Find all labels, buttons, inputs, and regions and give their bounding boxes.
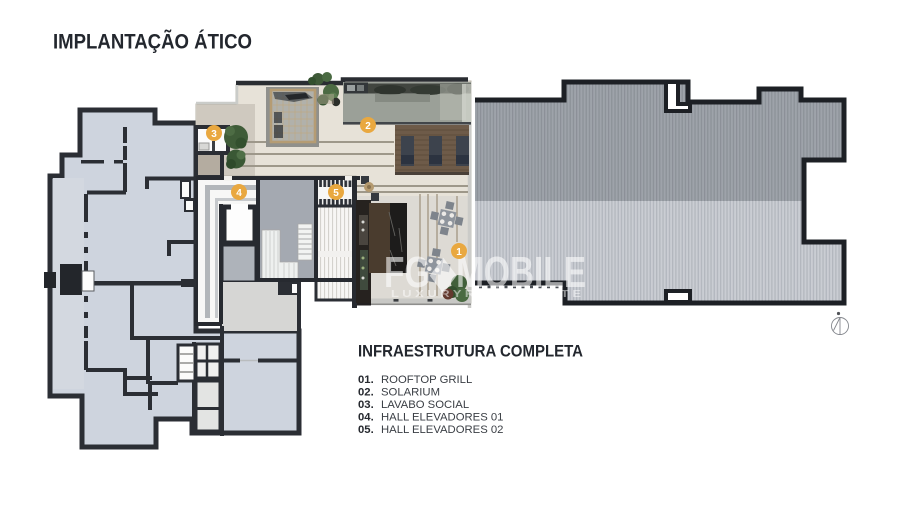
svg-text:L U X U R Y R E A L E S T: L U X U R Y R E A L E S T A T E	[391, 289, 581, 300]
svg-text:3: 3	[211, 129, 217, 140]
svg-text:2: 2	[365, 121, 371, 132]
svg-text:4: 4	[236, 188, 242, 199]
svg-text:5: 5	[333, 188, 339, 199]
svg-text:INFRAESTRUTURA COMPLETA: INFRAESTRUTURA COMPLETA	[358, 342, 583, 361]
svg-text:02.SOLARIUM: 02.SOLARIUM	[358, 387, 440, 399]
svg-text:1: 1	[456, 247, 462, 258]
svg-text:IMPLANTAÇÃO ÁTICO: IMPLANTAÇÃO ÁTICO	[53, 31, 252, 54]
